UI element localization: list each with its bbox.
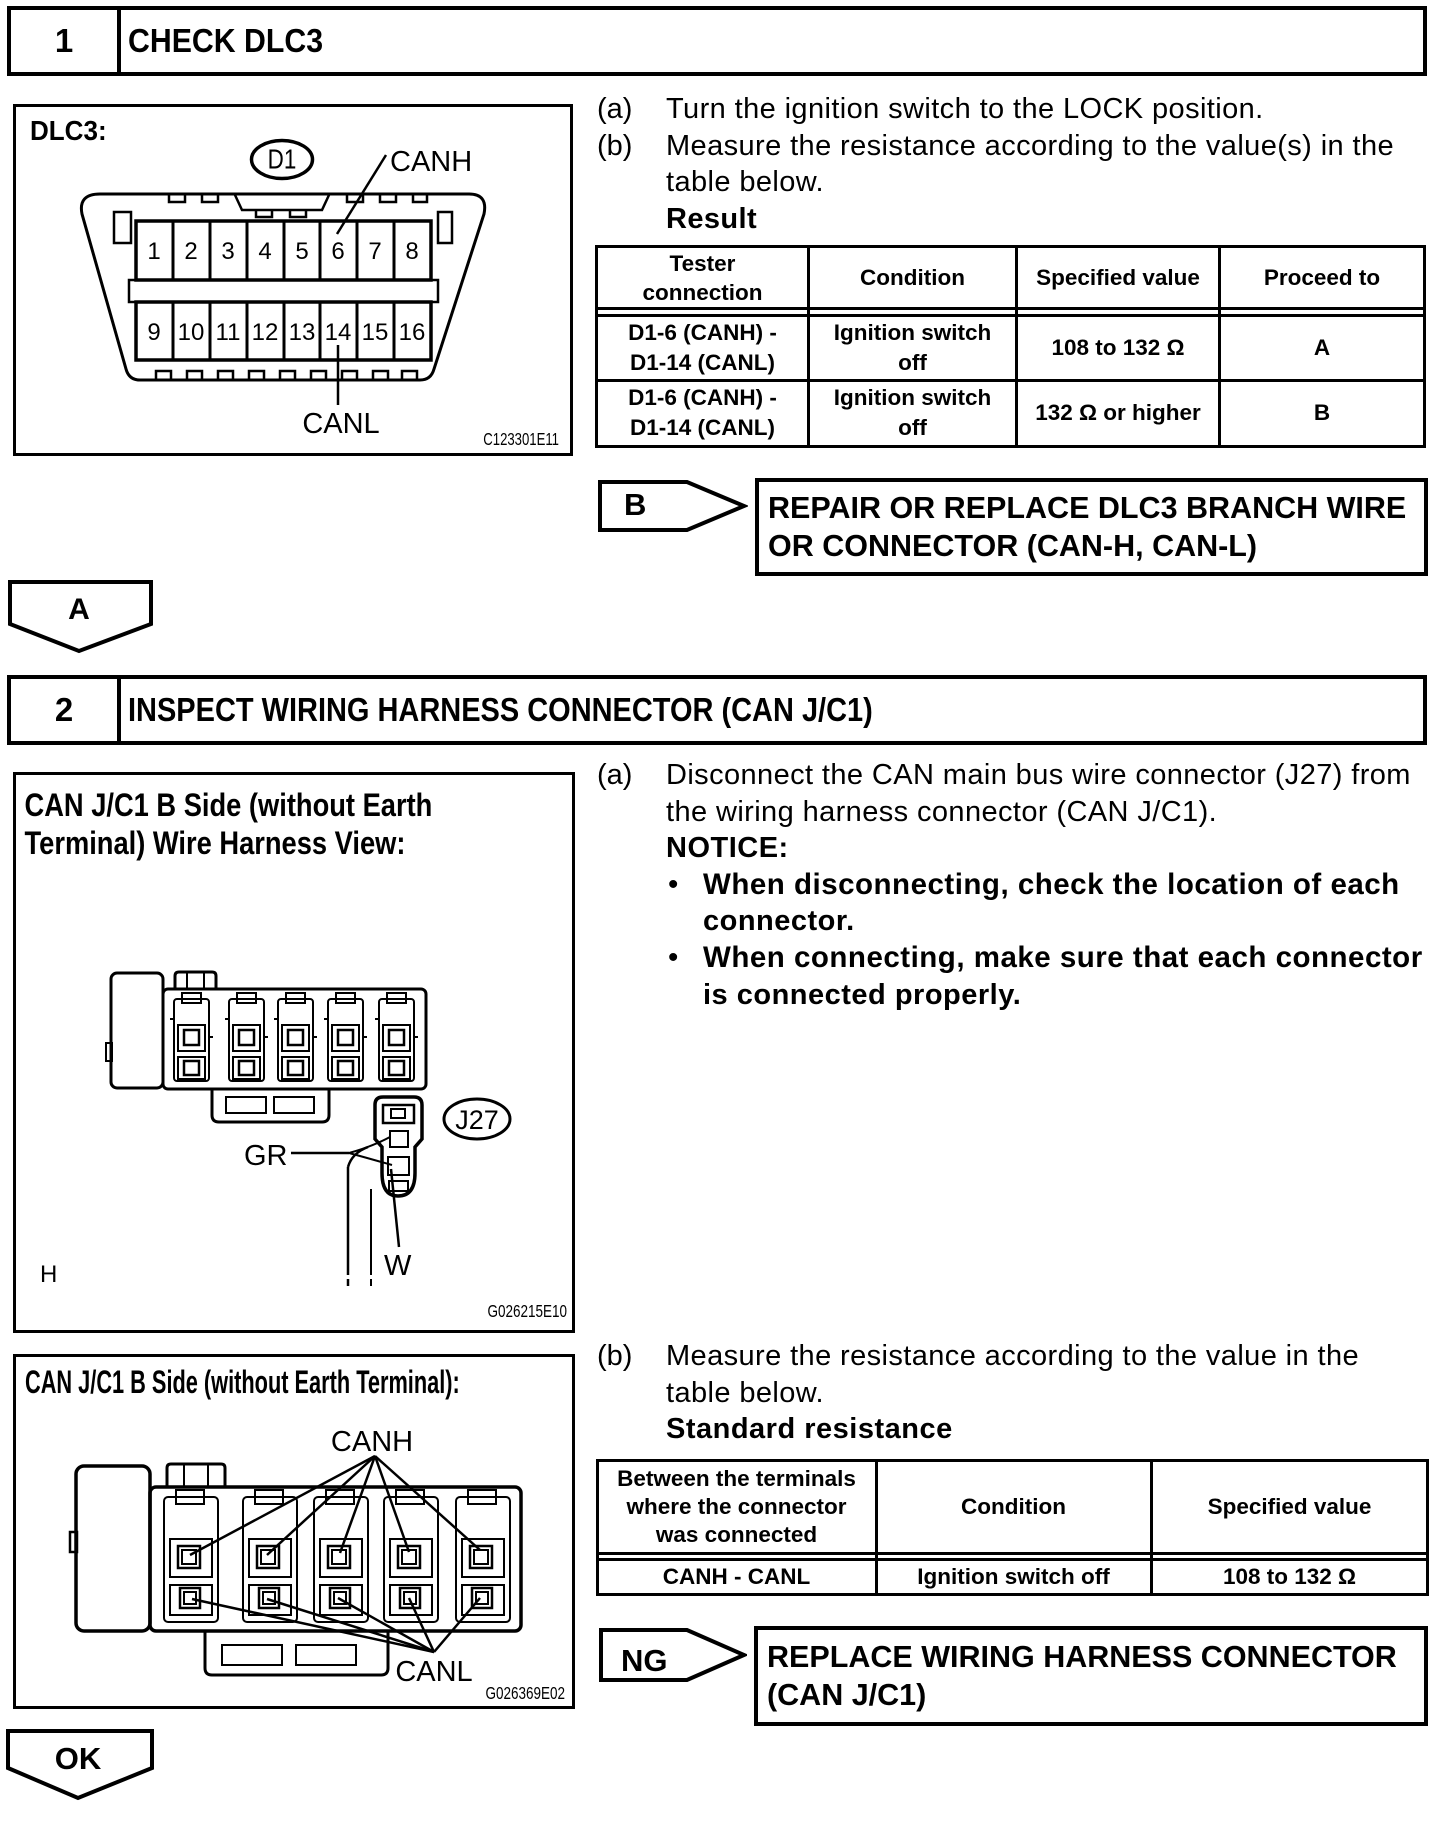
- svg-text:H: H: [40, 1261, 57, 1288]
- svg-text:GR: GR: [244, 1140, 288, 1172]
- svg-text:12: 12: [252, 319, 279, 346]
- svg-text:2: 2: [184, 238, 197, 265]
- svg-text:15: 15: [362, 319, 389, 346]
- svg-text:G026215E10: G026215E10: [488, 1302, 568, 1321]
- svg-text:6: 6: [331, 238, 344, 265]
- svg-text:B: B: [624, 487, 646, 522]
- svg-text:9: 9: [147, 319, 160, 346]
- svg-text:5: 5: [295, 238, 308, 265]
- svg-text:14: 14: [325, 319, 352, 346]
- svg-text:1: 1: [147, 238, 160, 265]
- svg-text:10: 10: [178, 319, 205, 346]
- svg-text:7: 7: [368, 238, 381, 265]
- svg-text:NG: NG: [621, 1643, 668, 1678]
- svg-text:C123301E11: C123301E11: [483, 430, 559, 449]
- svg-text:16: 16: [399, 319, 426, 346]
- svg-text:8: 8: [405, 238, 418, 265]
- svg-text:13: 13: [289, 319, 316, 346]
- svg-text:CAN J/C1 B Side (without Earth: CAN J/C1 B Side (without Earth Terminal)…: [25, 1364, 460, 1400]
- svg-text:11: 11: [216, 319, 241, 346]
- svg-text:CANL: CANL: [302, 408, 379, 440]
- svg-text:CANH: CANH: [331, 1426, 413, 1458]
- svg-text:3: 3: [221, 238, 234, 265]
- svg-text:CAN J/C1 B Side (without Earth: CAN J/C1 B Side (without Earth: [25, 788, 433, 824]
- svg-text:CANL: CANL: [395, 1656, 472, 1688]
- svg-text:D1: D1: [268, 144, 297, 175]
- svg-text:DLC3:: DLC3:: [30, 115, 107, 146]
- svg-text:Terminal) Wire Harness View:: Terminal) Wire Harness View:: [25, 826, 406, 862]
- svg-text:G026369E02: G026369E02: [486, 1684, 566, 1703]
- svg-text:A: A: [68, 593, 90, 626]
- svg-text:J27: J27: [455, 1105, 499, 1135]
- svg-text:CANH: CANH: [390, 146, 472, 178]
- svg-text:OK: OK: [55, 1741, 102, 1776]
- svg-text:W: W: [384, 1250, 412, 1282]
- svg-text:4: 4: [258, 238, 271, 265]
